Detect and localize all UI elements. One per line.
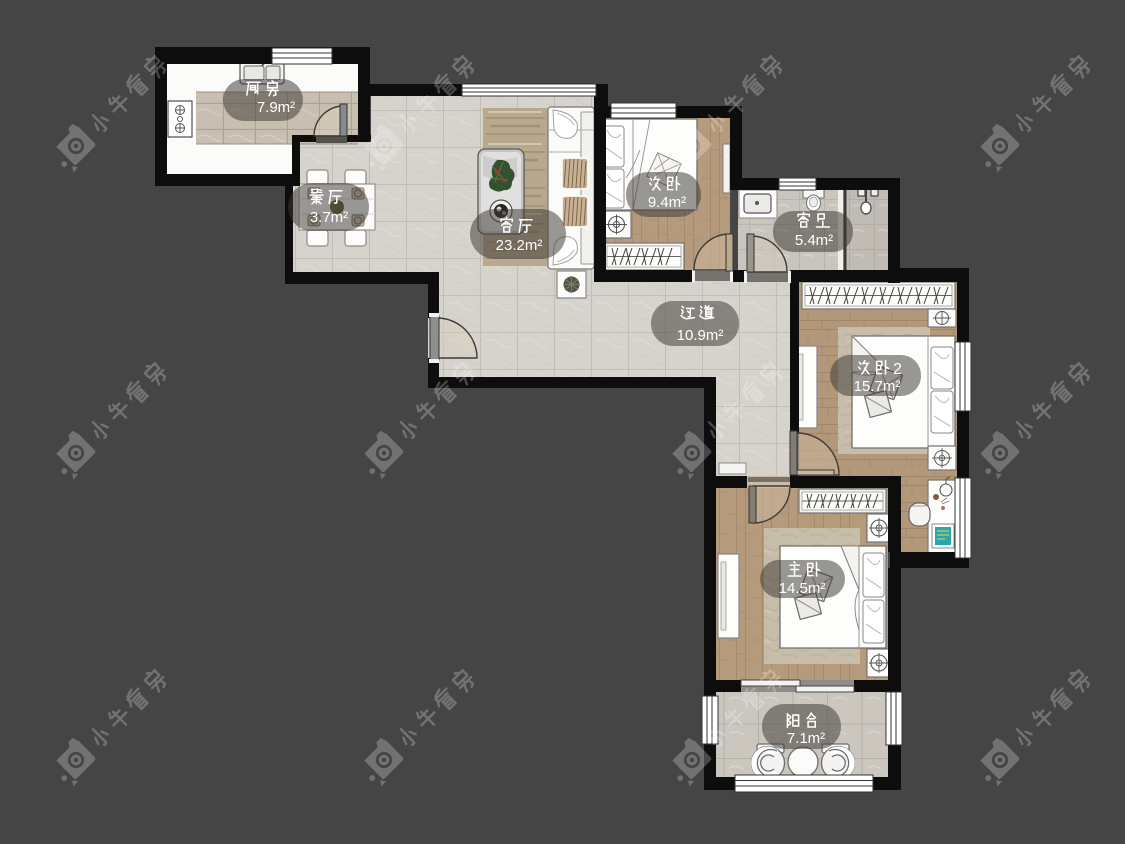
svg-text:7.9m²: 7.9m² xyxy=(257,99,295,116)
svg-text:14.5m²: 14.5m² xyxy=(779,580,826,597)
svg-text:7.1m²: 7.1m² xyxy=(787,730,825,747)
svg-text:5.4m²: 5.4m² xyxy=(795,232,833,249)
svg-text:9.4m²: 9.4m² xyxy=(648,194,686,211)
svg-text:2: 2 xyxy=(893,361,902,378)
svg-text:15.7m²: 15.7m² xyxy=(854,378,901,395)
svg-text:3.7m²: 3.7m² xyxy=(310,209,348,226)
svg-text:23.2m²: 23.2m² xyxy=(496,237,543,254)
svg-text:10.9m²: 10.9m² xyxy=(677,327,724,344)
